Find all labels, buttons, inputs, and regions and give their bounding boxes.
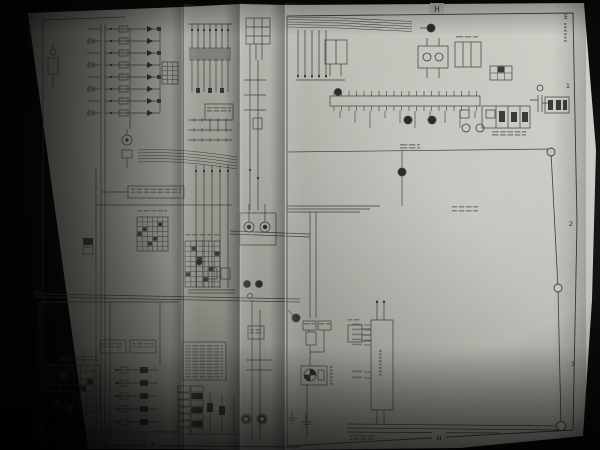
photo-vignette	[0, 0, 600, 450]
wiring-diagram-photo: H H A 1 2 3 E E	[0, 0, 600, 450]
photo-stage: H H A 1 2 3 E E	[0, 0, 600, 450]
